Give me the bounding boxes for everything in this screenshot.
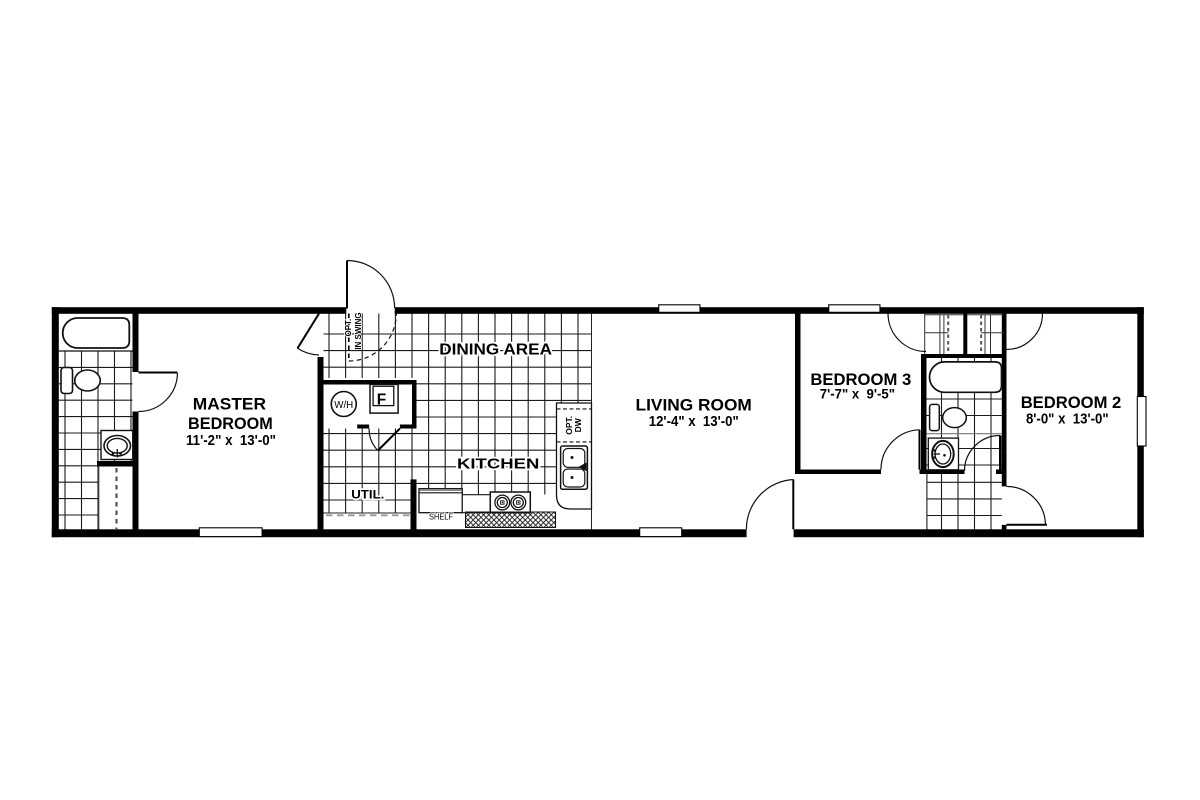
svg-text:F: F	[377, 392, 386, 409]
svg-text:KITCHEN: KITCHEN	[457, 455, 539, 472]
svg-text:12'-4" x 13'-0": 12'-4" x 13'-0"	[649, 414, 739, 430]
svg-text:DW: DW	[573, 417, 583, 432]
svg-text:MASTER: MASTER	[193, 395, 266, 414]
svg-text:OPT.: OPT.	[344, 319, 353, 337]
svg-text:BEDROOM 2: BEDROOM 2	[1021, 393, 1122, 412]
svg-text:11'-2" x 13'-0": 11'-2" x 13'-0"	[186, 433, 276, 449]
svg-text:SHELF: SHELF	[429, 512, 453, 521]
svg-text:DINING AREA: DINING AREA	[439, 342, 552, 359]
svg-text:BEDROOM: BEDROOM	[188, 414, 273, 433]
svg-text:8'-0" x 13'-0": 8'-0" x 13'-0"	[1026, 411, 1109, 427]
svg-text:7'-7" x 9'-5": 7'-7" x 9'-5"	[820, 387, 895, 402]
svg-text:W/H: W/H	[334, 400, 353, 411]
svg-text:UTIL.: UTIL.	[351, 490, 384, 502]
svg-text:LIVING ROOM: LIVING ROOM	[636, 396, 752, 415]
svg-text:IN SWING: IN SWING	[354, 312, 363, 349]
